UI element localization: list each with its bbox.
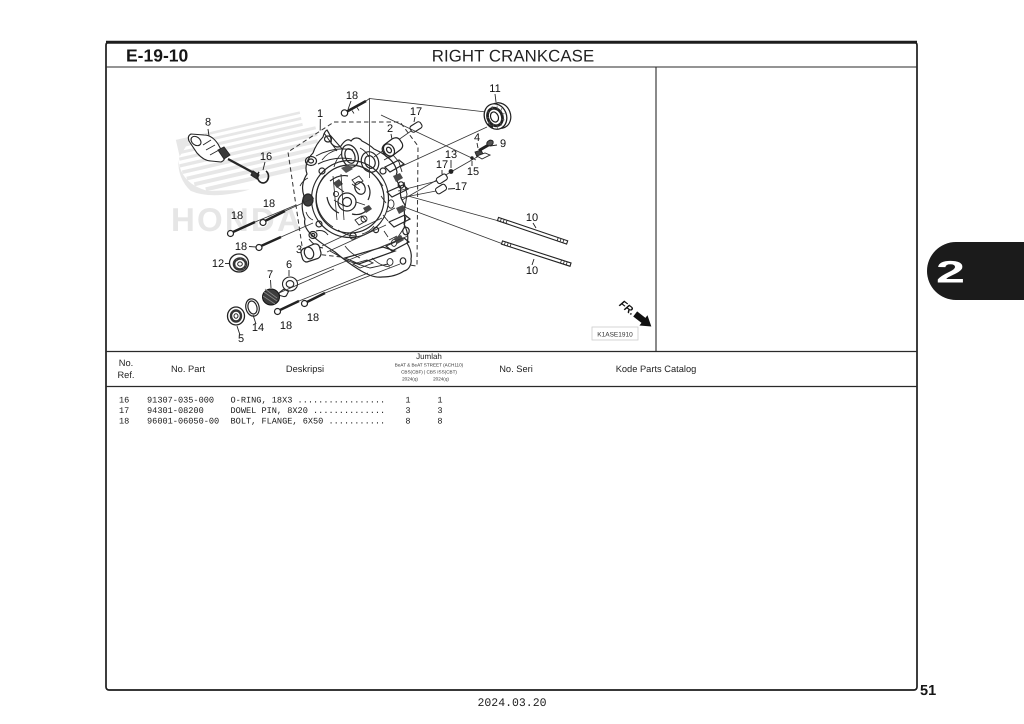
svg-text:10: 10 xyxy=(526,212,538,224)
svg-text:18: 18 xyxy=(119,417,129,427)
svg-text:94301-08200: 94301-08200 xyxy=(147,406,204,416)
svg-text:DOWEL PIN, 8X20 ..............: DOWEL PIN, 8X20 .............. xyxy=(231,406,386,416)
svg-text:18: 18 xyxy=(231,210,243,222)
svg-text:11: 11 xyxy=(489,83,500,95)
svg-text:8: 8 xyxy=(205,117,211,129)
svg-text:18: 18 xyxy=(346,90,358,102)
svg-text:17: 17 xyxy=(410,106,422,118)
svg-text:3: 3 xyxy=(437,406,442,416)
svg-text:CBS(CBF) | CBS ISS(CBT): CBS(CBF) | CBS ISS(CBT) xyxy=(401,370,457,375)
svg-text:51: 51 xyxy=(920,683,936,699)
svg-text:BeAT & BeAT STREET (ACH110): BeAT & BeAT STREET (ACH110) xyxy=(395,363,464,368)
svg-text:18: 18 xyxy=(307,312,319,324)
svg-text:8: 8 xyxy=(437,417,442,427)
svg-text:No. Part: No. Part xyxy=(171,364,206,374)
svg-text:16: 16 xyxy=(119,396,129,406)
svg-text:9: 9 xyxy=(500,138,506,150)
svg-text:Deskripsi: Deskripsi xyxy=(286,364,324,374)
svg-text:2024(q): 2024(q) xyxy=(402,377,418,382)
svg-text:E-19-10: E-19-10 xyxy=(126,46,189,66)
svg-text:No.: No. xyxy=(119,358,133,368)
svg-text:O-RING, 18X3 .................: O-RING, 18X3 ................. xyxy=(231,396,386,406)
svg-text:No. Seri: No. Seri xyxy=(499,364,533,374)
svg-text:Ref.: Ref. xyxy=(117,370,134,380)
svg-text:16: 16 xyxy=(260,151,272,163)
svg-text:5: 5 xyxy=(238,333,244,345)
svg-text:1: 1 xyxy=(437,396,442,406)
svg-text:3: 3 xyxy=(405,406,410,416)
svg-text:18: 18 xyxy=(263,198,275,210)
svg-text:4: 4 xyxy=(474,132,480,144)
svg-text:2024.03.20: 2024.03.20 xyxy=(477,697,546,710)
svg-text:7: 7 xyxy=(267,269,273,281)
svg-text:14: 14 xyxy=(252,322,264,334)
svg-text:BOLT, FLANGE, 6X50 ...........: BOLT, FLANGE, 6X50 ........... xyxy=(231,417,386,427)
svg-text:K1ASE1910: K1ASE1910 xyxy=(597,332,633,339)
svg-text:15: 15 xyxy=(467,166,479,178)
svg-text:17: 17 xyxy=(455,181,467,193)
svg-text:18: 18 xyxy=(235,241,247,253)
svg-text:91307-035-000: 91307-035-000 xyxy=(147,396,214,406)
svg-text:1: 1 xyxy=(405,396,410,406)
svg-text:17: 17 xyxy=(436,159,448,171)
svg-text:12: 12 xyxy=(212,258,224,270)
svg-text:1: 1 xyxy=(317,108,323,120)
svg-text:Kode Parts Catalog: Kode Parts Catalog xyxy=(616,364,697,374)
svg-text:RIGHT CRANKCASE: RIGHT CRANKCASE xyxy=(432,47,595,66)
svg-text:10: 10 xyxy=(526,265,538,277)
svg-text:2: 2 xyxy=(936,255,965,290)
svg-text:2024(q): 2024(q) xyxy=(433,377,449,382)
svg-text:8: 8 xyxy=(405,417,410,427)
svg-text:96001-06050-00: 96001-06050-00 xyxy=(147,417,219,427)
svg-text:6: 6 xyxy=(286,259,292,271)
svg-text:18: 18 xyxy=(280,320,292,332)
svg-text:Jumlah: Jumlah xyxy=(416,352,442,361)
svg-text:2: 2 xyxy=(387,123,393,135)
svg-text:17: 17 xyxy=(119,406,129,416)
